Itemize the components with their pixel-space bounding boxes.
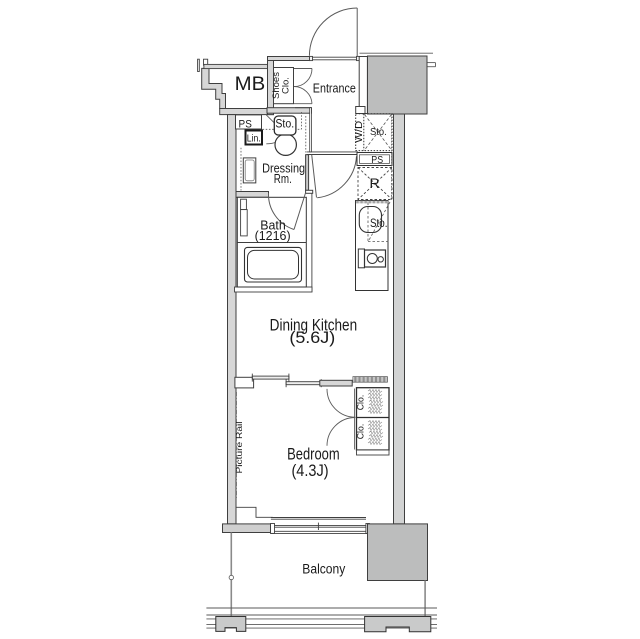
svg-text:(4.3J): (4.3J) (291, 462, 328, 480)
svg-text:Rm.: Rm. (274, 172, 292, 186)
svg-text:R: R (370, 175, 380, 191)
svg-text:(5.6J): (5.6J) (289, 329, 335, 347)
svg-text:(1216): (1216) (255, 229, 291, 243)
svg-text:Entrance: Entrance (313, 81, 356, 95)
svg-text:Sto.: Sto. (370, 126, 387, 138)
svg-text:Clo.: Clo. (356, 424, 366, 440)
svg-text:Sto.: Sto. (275, 118, 294, 130)
svg-text:MB: MB (235, 74, 266, 95)
svg-text:W/D: W/D (354, 121, 365, 143)
svg-text:Balcony: Balcony (302, 562, 345, 577)
svg-text:Picture Rail: Picture Rail (234, 421, 244, 473)
svg-text:Sto.: Sto. (370, 218, 388, 230)
svg-text:Clo.: Clo. (356, 395, 366, 411)
svg-text:PS: PS (239, 118, 252, 130)
svg-text:Bedroom: Bedroom (287, 446, 340, 464)
svg-text:PS: PS (371, 154, 383, 166)
svg-text:Clo.: Clo. (281, 77, 292, 94)
svg-text:Lin.: Lin. (247, 133, 261, 144)
